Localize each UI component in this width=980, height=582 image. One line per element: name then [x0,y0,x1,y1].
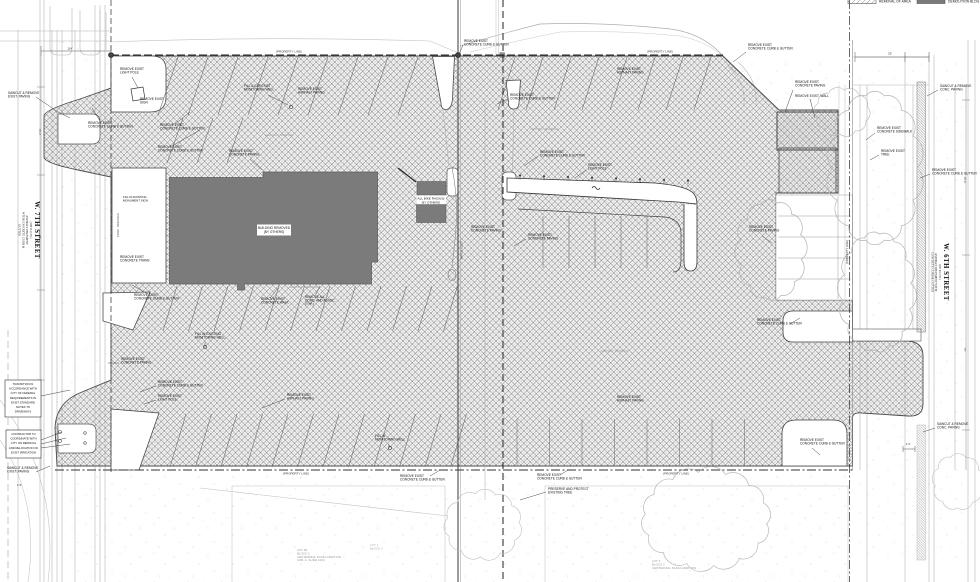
svg-text:CONCRETE PAVING: CONCRETE PAVING [229,153,260,157]
svg-text:CONCRETE WALK: CONCRETE WALK [261,301,290,305]
svg-text:25.8': 25.8' [963,177,967,184]
svg-text:CAB. A, SLIDE 1234: CAB. A, SLIDE 1234 [297,558,325,562]
svg-text:CONCRETE PAVING: CONCRETE PAVING [528,237,559,241]
svg-text:EXIST. PAVING: EXIST. PAVING [7,470,30,474]
svg-text:ASPHALT PAVING: ASPHALT PAVING [617,399,644,403]
svg-text:ASPHALT PARKING: ASPHALT PARKING [529,127,559,131]
svg-text:BY OTHERS: BY OTHERS [422,200,440,204]
svg-text:CONTRACTOR TO: CONTRACTOR TO [11,432,36,436]
svg-text:CONCRETE CURB & GUTTER: CONCRETE CURB & GUTTER [930,252,934,292]
svg-text:25': 25' [888,52,892,56]
svg-text:ACCORDANCE WITH: ACCORDANCE WITH [9,387,37,391]
svg-text:45.3': 45.3' [38,129,42,136]
svg-text:SIGN: SIGN [140,101,148,105]
svg-text:1.5': 1.5' [17,483,22,487]
svg-text:CONCRETE PAVING: CONCRETE PAVING [121,361,152,365]
svg-text:CONCRETE CURB & GUTTER: CONCRETE CURB & GUTTER [134,297,180,301]
svg-text:CONCRETE CURB & GUTTER: CONCRETE CURB & GUTTER [800,442,846,446]
svg-text:CONC. PAVING: CONC. PAVING [940,88,963,92]
svg-text:ASPHALT PARKING: ASPHALT PARKING [264,133,294,137]
svg-text:EXIST STANDARD: EXIST STANDARD [11,400,35,404]
svg-text:MATCH EXIST: MATCH EXIST [460,240,464,259]
svg-text:AND RELOCATION OF: AND RELOCATION OF [9,446,39,450]
svg-text:CONCRETE CURB & GUTTER: CONCRETE CURB & GUTTER [158,149,204,153]
svg-text:CONCRETE PAVING: CONCRETE PAVING [795,84,826,88]
svg-text:ASPHALT PAVING: ASPHALT PAVING [287,397,314,401]
svg-text:(PROPERTY LINE): (PROPERTY LINE) [276,50,302,54]
svg-text:EXIST. PAVING: EXIST. PAVING [8,95,31,99]
svg-text:(PROPERTY LINE): (PROPERTY LINE) [845,240,849,264]
svg-text:BLOCK 2: BLOCK 2 [370,546,383,550]
svg-text:EXIST IRRIGATION: EXIST IRRIGATION [11,450,36,454]
svg-text:REMOVAL OF AREA: REMOVAL OF AREA [879,0,912,4]
svg-text:ASPHALT PAVING: ASPHALT PAVING [617,71,644,75]
svg-text:CONCRETE CURB & GUTTER: CONCRETE CURB & GUTTER [932,172,978,176]
svg-text:CONCRETE CURB & GUTTER: CONCRETE CURB & GUTTER [160,127,206,131]
svg-text:CONCRETE CURB & GUTTER: CONCRETE CURB & GUTTER [540,154,586,158]
svg-text:(PROPERTY LINE): (PROPERTY LINE) [647,50,673,54]
svg-text:LIGHT POLE: LIGHT POLE [588,167,607,171]
svg-text:REQUIREMENTS IN: REQUIREMENTS IN [10,396,36,400]
svg-text:CONC. PAVING: CONC. PAVING [937,426,960,430]
svg-text:ASPHALT PAVING: ASPHALT PAVING [298,91,325,95]
svg-text:(PROPERTY LINE): (PROPERTY LINE) [663,472,689,476]
svg-text:CONCRETE SIDEWALK: CONCRETE SIDEWALK [877,130,913,134]
svg-text:DRIVEWAYS: DRIVEWAYS [15,410,32,414]
svg-text:DEMOLITION BLDG: DEMOLITION BLDG [948,0,980,4]
svg-text:MONITORING WELL: MONITORING WELL [244,88,274,92]
svg-text:CONCRETE CURB & GUTTER: CONCRETE CURB & GUTTER [510,97,556,101]
svg-text:CENTENNIAL PLAZA ADDITION: CENTENNIAL PLAZA ADDITION [652,566,696,570]
svg-text:(PROPERTY LINE): (PROPERTY LINE) [283,472,309,476]
svg-text:ASPHALT PARKING: ASPHALT PARKING [599,349,629,353]
svg-text:COORDINATE WITH: COORDINATE WITH [10,437,36,441]
svg-text:(BY OTHERS): (BY OTHERS) [264,230,285,234]
svg-text:CONCRETE CURB & GUTTER: CONCRETE CURB & GUTTER [158,384,204,388]
svg-text:MONITORING WELL: MONITORING WELL [195,336,225,340]
svg-text:MONUMENT SIGN: MONUMENT SIGN [123,198,148,202]
svg-text:CONCRETE CURB & GUTTER: CONCRETE CURB & GUTTER [537,477,583,481]
svg-text:EXISTING TREE: EXISTING TREE [548,491,572,495]
svg-text:CONCRETE PAVING: CONCRETE PAVING [749,229,780,233]
svg-text:CITY ON REMOVAL: CITY ON REMOVAL [11,441,37,445]
svg-text:LIGHT POLE: LIGHT POLE [120,71,139,75]
svg-text:TRANSITION IN: TRANSITION IN [13,382,34,386]
svg-text:CONCRETE CURB & GUTTER: CONCRETE CURB & GUTTER [464,43,510,47]
svg-text:GUTTER: GUTTER [18,224,22,236]
svg-text:ASPHALT PARKING: ASPHALT PARKING [289,285,319,289]
svg-text:NOTES TO: NOTES TO [16,405,31,409]
svg-text:CONCRETE CURB & GUTTER: CONCRETE CURB & GUTTER [88,125,134,129]
svg-text:CONCRETE TRANS: CONCRETE TRANS [120,259,150,263]
svg-text:CONCRETE CURB & GUTTER: CONCRETE CURB & GUTTER [757,322,803,326]
svg-text:TREE: TREE [881,153,890,157]
svg-text:MONITORING WELL: MONITORING WELL [375,438,405,442]
svg-text:1.5': 1.5' [906,442,911,446]
svg-text:87': 87' [963,348,967,352]
svg-text:REMOVE EXIST. WALL: REMOVE EXIST. WALL [795,94,829,98]
svg-text:(TYP.): (TYP.) [305,302,314,306]
svg-text:CONC. SIDEWALK: CONC. SIDEWALK [116,213,120,237]
svg-text:CITY OF FEDERAL: CITY OF FEDERAL [11,391,36,395]
svg-text:CONCRETE CURB & GUTTER: CONCRETE CURB & GUTTER [748,47,794,51]
svg-text:CONCRETE PAVING: CONCRETE PAVING [471,229,502,233]
svg-text:W. 6TH STREET: W. 6TH STREET [942,243,949,301]
svg-text:LIGHT POLE: LIGHT POLE [158,398,177,402]
svg-text:114': 114' [67,47,73,51]
svg-text:CONCRETE CURB & GUTTER: CONCRETE CURB & GUTTER [400,478,446,482]
svg-text:W. 7TH STREET: W. 7TH STREET [33,201,40,259]
